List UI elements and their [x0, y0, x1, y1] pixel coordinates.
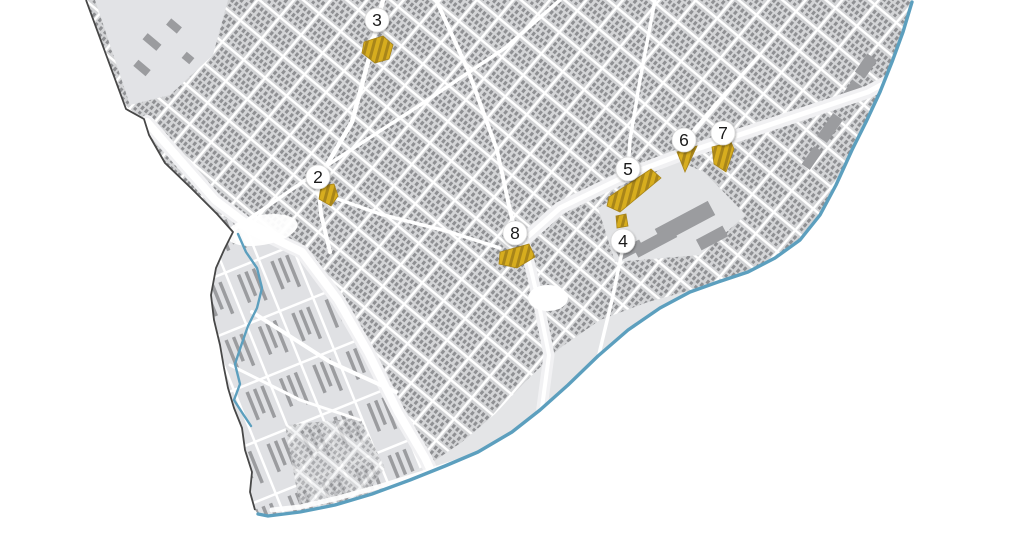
marker-number: 7: [718, 123, 728, 143]
marker-number: 5: [623, 159, 633, 179]
marker-number: 3: [372, 10, 382, 30]
marker-number: 6: [679, 130, 689, 150]
marker-6[interactable]: 6: [672, 128, 696, 152]
marker-number: 2: [313, 167, 323, 187]
marker-3[interactable]: 3: [365, 8, 389, 32]
district-map-canvas: 2345678: [0, 0, 1024, 540]
marker-4[interactable]: 4: [611, 229, 635, 253]
marker-8[interactable]: 8: [503, 221, 527, 245]
marker-7[interactable]: 7: [711, 121, 735, 145]
marker-number: 8: [510, 223, 520, 243]
site-4: [616, 214, 628, 228]
marker-number: 4: [618, 231, 628, 251]
map-svg: 2345678: [0, 0, 1024, 540]
marker-5[interactable]: 5: [616, 157, 640, 181]
marker-2[interactable]: 2: [306, 165, 330, 189]
